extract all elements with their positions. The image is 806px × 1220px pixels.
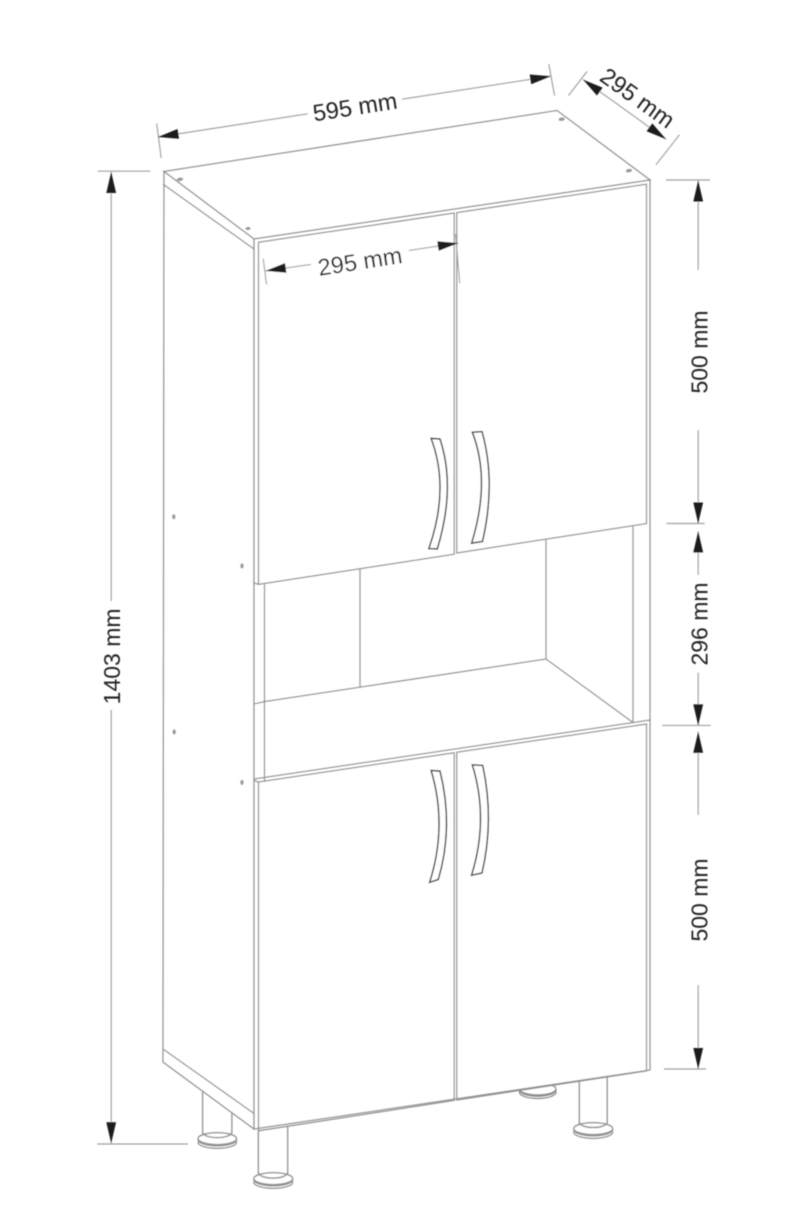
svg-text:500 mm: 500 mm	[687, 310, 713, 393]
svg-text:500 mm: 500 mm	[687, 858, 713, 941]
svg-text:296 mm: 296 mm	[687, 582, 713, 665]
svg-text:1403 mm: 1403 mm	[99, 608, 125, 704]
